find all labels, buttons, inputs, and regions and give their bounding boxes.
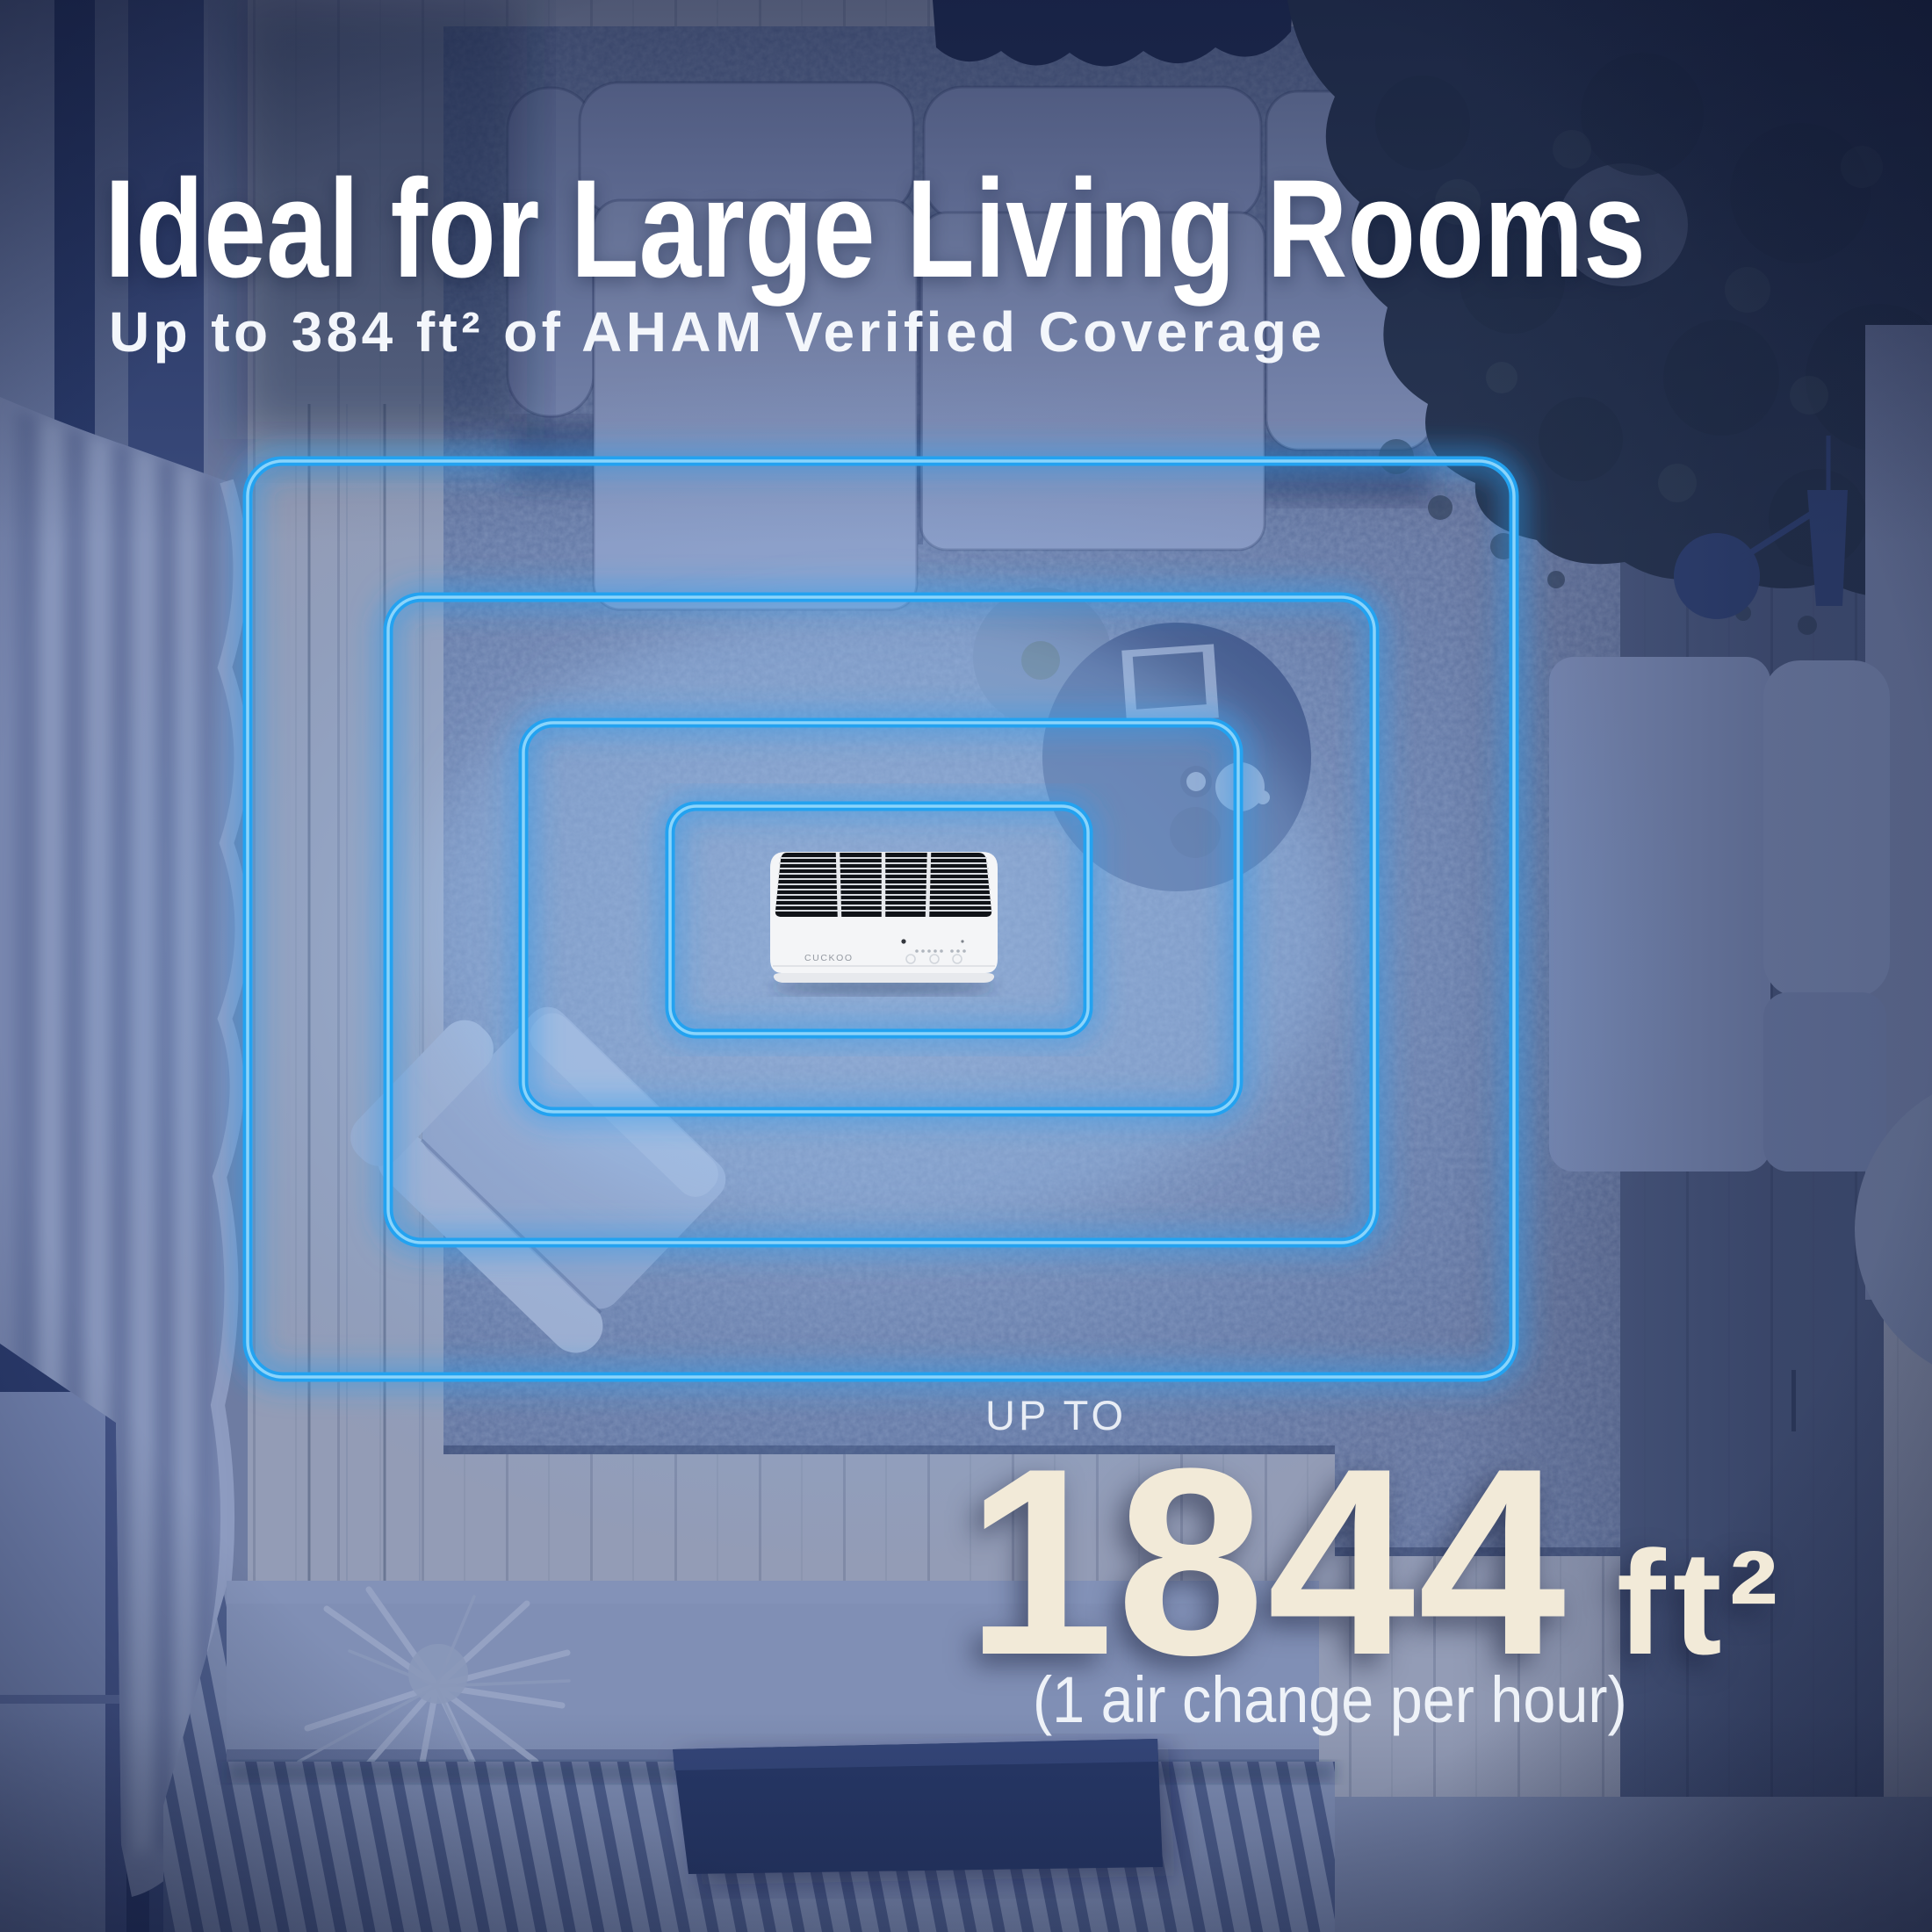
svg-text:CUCKOO: CUCKOO [804,953,854,963]
